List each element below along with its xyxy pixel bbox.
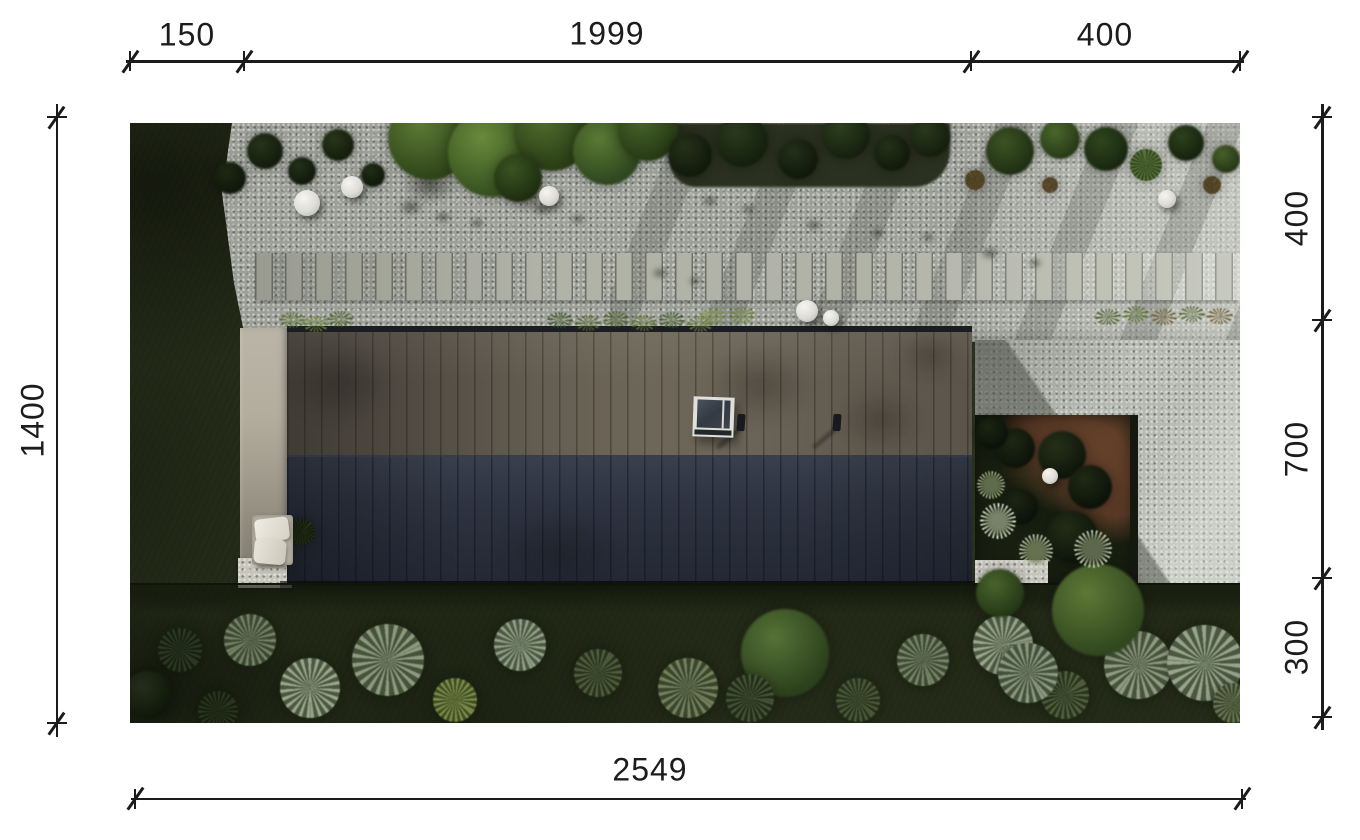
aerial-photo — [130, 123, 1240, 723]
bush — [1203, 176, 1221, 194]
grass-tuft — [303, 316, 329, 332]
bush — [1068, 465, 1112, 509]
bush — [288, 157, 316, 185]
skylight-sill — [694, 429, 731, 435]
bush — [1052, 564, 1144, 656]
flower-cluster — [1019, 534, 1053, 568]
grass-tuft — [1151, 309, 1177, 325]
bush — [976, 417, 1008, 449]
bush — [361, 163, 385, 187]
dim-value: 400 — [1077, 17, 1133, 54]
bush-shadow — [920, 231, 936, 242]
grass-tuft — [699, 308, 725, 324]
bush-shadow — [650, 266, 670, 280]
bush — [874, 135, 910, 171]
grass-tuft — [327, 311, 353, 327]
grass-tuft — [547, 312, 573, 328]
flower-cluster — [1074, 530, 1112, 568]
dim-value: 700 — [1279, 421, 1316, 477]
dim-value: 1400 — [15, 382, 52, 457]
sphere-lamp — [1158, 190, 1176, 208]
sphere-lamp — [1042, 468, 1058, 484]
grass-tuft — [1095, 309, 1121, 325]
grass-tuft — [729, 307, 755, 323]
bush — [247, 133, 283, 169]
dim-line-right — [1321, 104, 1324, 730]
bush — [198, 691, 238, 723]
roof-lower-band — [287, 455, 972, 583]
bush — [322, 129, 354, 161]
grass-tuft — [575, 315, 601, 331]
bush — [836, 678, 880, 722]
roof-vent — [736, 414, 745, 432]
grass-tuft — [279, 312, 305, 328]
bush — [494, 619, 546, 671]
bush — [726, 674, 774, 722]
sphere-lamp — [796, 300, 818, 322]
bush — [965, 170, 985, 190]
bush-shadow — [869, 227, 887, 240]
bush — [668, 133, 712, 177]
bush — [1130, 149, 1162, 181]
bush — [494, 154, 542, 202]
tree-shadow — [895, 329, 965, 382]
roof-vent — [832, 414, 841, 432]
bush — [1042, 177, 1058, 193]
sofa-cushion — [253, 538, 287, 566]
bush-shadow — [700, 194, 720, 208]
sphere-lamp — [823, 310, 839, 326]
bush — [1084, 127, 1128, 171]
bush — [778, 139, 818, 179]
bush — [433, 678, 477, 722]
bush-shadow — [804, 218, 824, 232]
bush-shadow — [740, 203, 756, 214]
bush-shadow — [1026, 257, 1044, 270]
grass-tuft — [659, 312, 685, 328]
tree-shadow — [500, 508, 620, 598]
flower-cluster — [977, 471, 1005, 499]
grass-tuft — [1123, 306, 1149, 322]
bush — [574, 649, 622, 697]
flower-cluster — [980, 503, 1016, 539]
sphere-lamp — [294, 190, 320, 216]
dim-line-left — [56, 104, 59, 737]
dim-value: 400 — [1279, 190, 1316, 246]
bush — [1212, 145, 1240, 173]
stepping-stone-path — [255, 253, 1240, 300]
bush-shadow — [433, 210, 453, 224]
grass-tuft — [1179, 306, 1205, 322]
bush — [214, 162, 246, 194]
dim-value: 300 — [1279, 619, 1316, 675]
skylight-glass — [697, 399, 731, 428]
bush — [976, 569, 1024, 617]
grass-tuft — [1207, 308, 1233, 324]
dim-value: 1999 — [569, 16, 644, 53]
bush-shadow — [569, 213, 587, 226]
grass-tuft — [603, 311, 629, 327]
bush-shadow — [687, 275, 703, 286]
courtyard-wall — [1130, 415, 1138, 585]
skylight — [692, 396, 734, 437]
bush — [1168, 125, 1204, 161]
bush — [897, 634, 949, 686]
tree-shadow — [285, 342, 395, 425]
dim-line-bottom — [131, 798, 1246, 801]
grass-tuft — [631, 315, 657, 331]
dim-value: 150 — [159, 17, 215, 54]
tree-shadow — [835, 386, 925, 454]
site-plan-figure: 150 1999 400 1400 400 700 300 2549 — [0, 0, 1360, 840]
sphere-lamp — [539, 186, 559, 206]
bush — [998, 643, 1058, 703]
bush — [658, 658, 718, 718]
bush — [224, 614, 276, 666]
bush — [280, 658, 340, 718]
bush-shadow — [978, 245, 1002, 262]
bush — [158, 628, 202, 672]
sphere-lamp — [341, 176, 363, 198]
dim-value: 2549 — [612, 752, 687, 789]
bush-shadow — [468, 217, 486, 230]
bush — [986, 127, 1034, 175]
dim-line-top — [126, 60, 1244, 63]
bush — [352, 624, 424, 696]
